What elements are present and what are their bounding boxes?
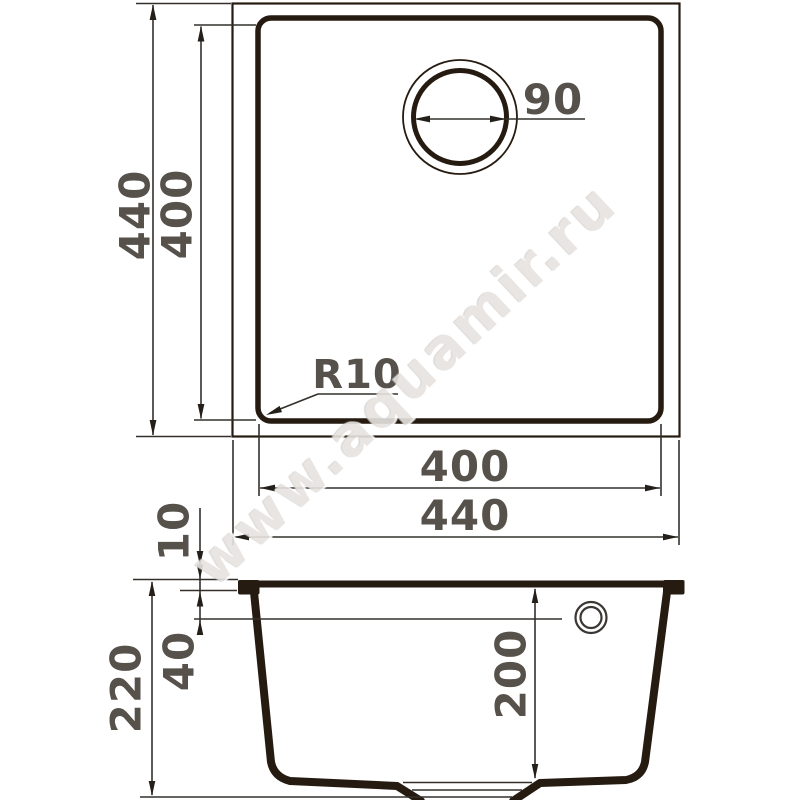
dim-bowl-depth: 200 <box>487 588 539 779</box>
dim-drain-diameter: 90 <box>414 75 585 124</box>
sink-dimension-drawing: 90 440 400 R10 <box>0 0 800 800</box>
arrowhead-right <box>490 116 506 123</box>
drain-diameter-label: 90 <box>523 75 583 124</box>
dim-overall-depth: 220 <box>102 581 156 796</box>
drawing-canvas: 90 440 400 R10 <box>0 0 800 800</box>
dim-rim-and-overflow: 10 40 <box>150 501 204 691</box>
overall-depth-label: 220 <box>102 643 151 734</box>
overflow-hole-icon <box>576 602 607 633</box>
watermark: www.aquamir.ru <box>180 171 630 599</box>
arrowhead-left <box>414 116 430 123</box>
width-inner-label: 400 <box>420 442 511 491</box>
width-outer-label: 440 <box>420 491 511 540</box>
height-inner-label: 400 <box>153 169 202 260</box>
bowl-depth-label: 200 <box>487 629 536 720</box>
drain-outer-circle <box>403 60 517 174</box>
arrowhead-corner <box>266 406 282 415</box>
dim-height-inner: 400 <box>153 25 257 420</box>
bowl-wall-left <box>254 592 421 800</box>
top-view: 90 440 400 R10 <box>111 4 680 546</box>
overflow-depth-label: 40 <box>155 631 204 691</box>
